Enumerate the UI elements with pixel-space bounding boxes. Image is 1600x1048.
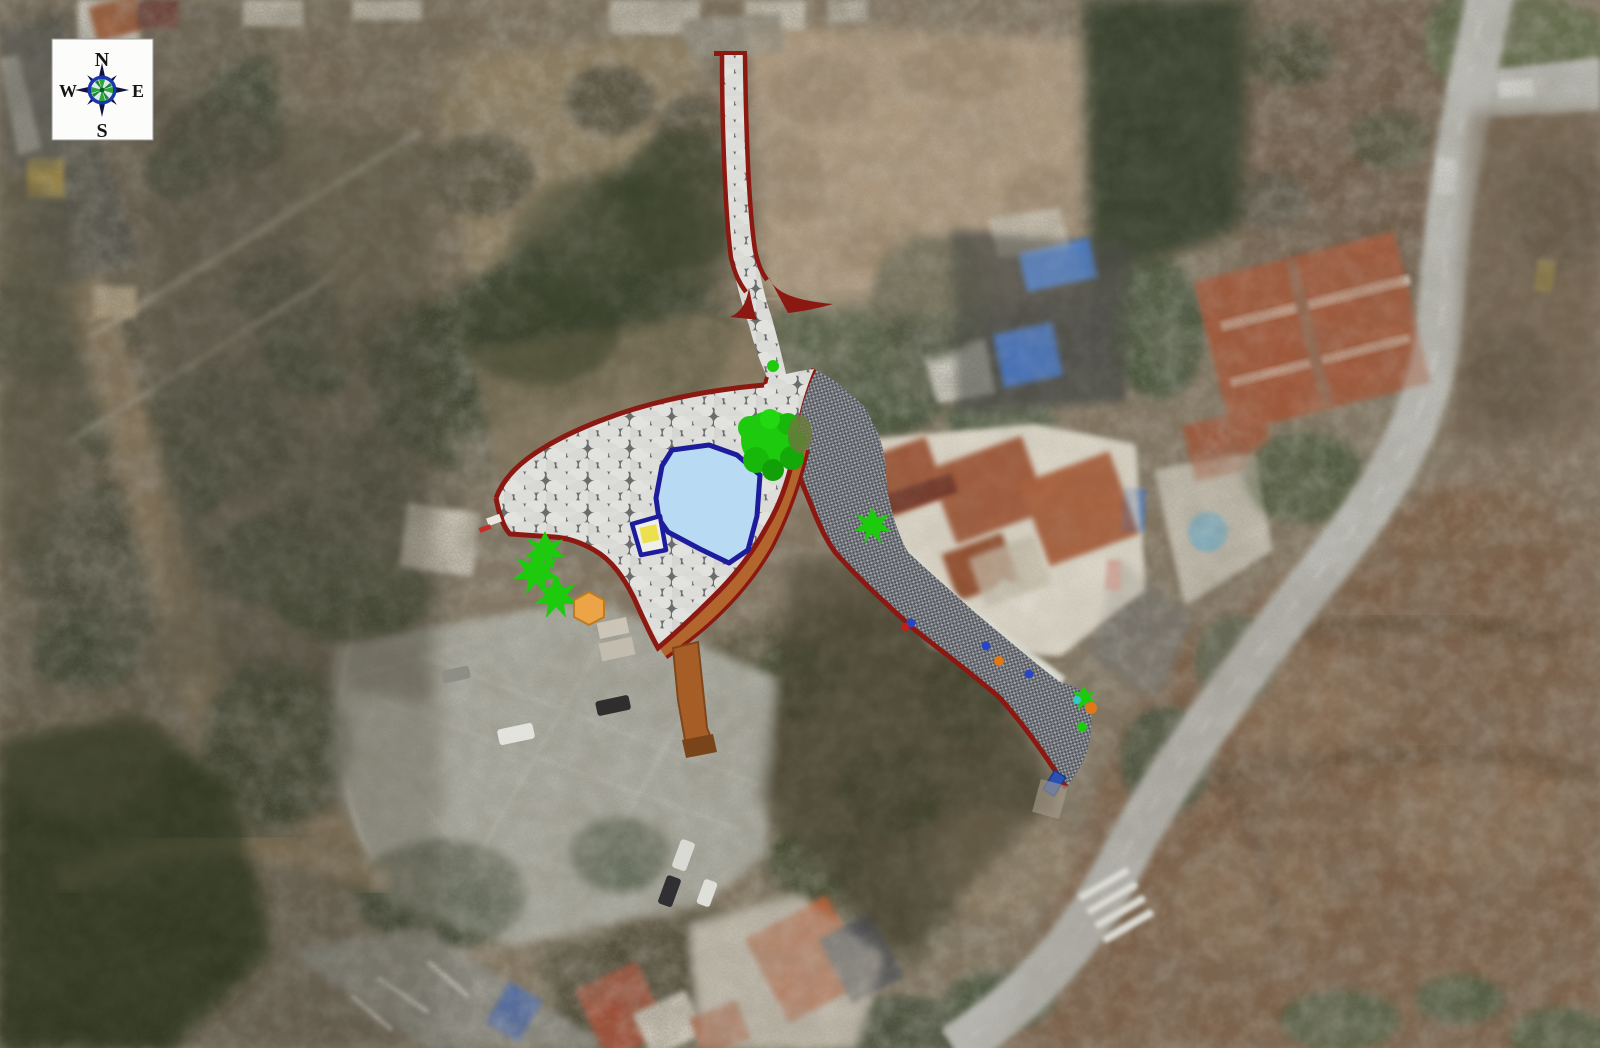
svg-text:W: W — [59, 81, 77, 101]
svg-text:S: S — [96, 120, 107, 142]
svg-text:E: E — [132, 81, 144, 101]
